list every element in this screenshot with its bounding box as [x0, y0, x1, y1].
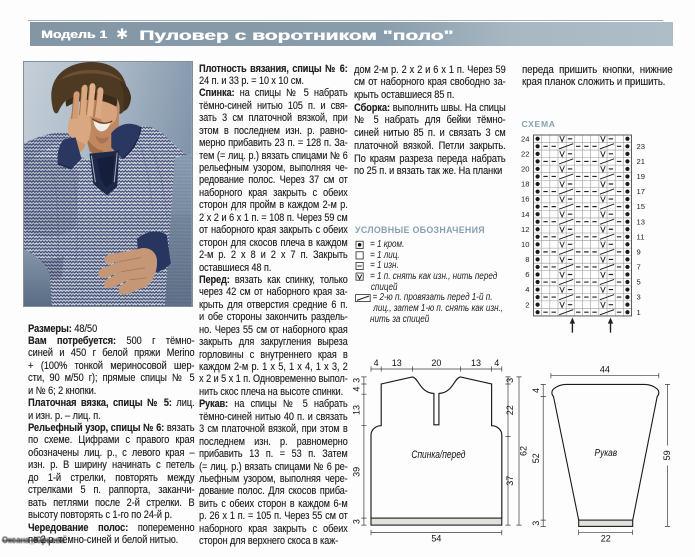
svg-text:13: 13 [352, 405, 362, 415]
svg-text:24: 24 [521, 134, 529, 143]
svg-text:59: 59 [662, 450, 672, 460]
svg-text:54: 54 [431, 534, 441, 544]
svg-text:52: 52 [531, 453, 541, 463]
svg-text:3: 3 [637, 293, 641, 302]
svg-text:4: 4 [531, 388, 541, 393]
svg-text:5: 5 [637, 278, 641, 287]
svg-text:17: 17 [637, 187, 645, 196]
svg-text:37: 37 [505, 476, 515, 486]
svg-text:21: 21 [637, 157, 645, 166]
svg-text:13: 13 [471, 358, 481, 368]
svg-text:3: 3 [505, 378, 515, 383]
svg-text:11: 11 [637, 232, 645, 241]
svg-text:20: 20 [521, 165, 529, 174]
svg-text:15: 15 [637, 202, 645, 211]
svg-text:4: 4 [352, 387, 362, 392]
svg-text:62: 62 [518, 446, 528, 456]
svg-text:3: 3 [531, 521, 541, 526]
svg-text:Рукав: Рукав [595, 448, 618, 459]
svg-text:9: 9 [637, 247, 641, 256]
svg-text:19: 19 [637, 172, 645, 181]
svg-text:Спинка/перед: Спинка/перед [411, 449, 465, 461]
svg-text:12: 12 [521, 225, 529, 234]
svg-text:4: 4 [494, 358, 499, 368]
svg-text:23: 23 [637, 142, 645, 151]
svg-text:20: 20 [431, 358, 441, 368]
svg-text:10: 10 [521, 240, 529, 249]
svg-text:4: 4 [525, 285, 529, 294]
svg-text:3: 3 [352, 519, 362, 524]
svg-text:22: 22 [521, 149, 529, 158]
svg-text:18: 18 [521, 180, 529, 189]
svg-text:7: 7 [637, 263, 641, 272]
svg-text:39: 39 [352, 467, 362, 477]
svg-text:2: 2 [525, 300, 529, 309]
svg-text:13: 13 [392, 358, 402, 368]
svg-text:8: 8 [525, 255, 529, 264]
svg-text:22: 22 [505, 405, 515, 415]
svg-text:6: 6 [525, 270, 529, 279]
svg-text:14: 14 [521, 210, 529, 219]
svg-text:13: 13 [637, 217, 645, 226]
svg-text:4: 4 [374, 358, 379, 368]
svg-text:3: 3 [352, 378, 362, 383]
svg-text:44: 44 [600, 365, 610, 375]
svg-text:22: 22 [601, 533, 611, 543]
svg-text:16: 16 [521, 195, 529, 204]
svg-text:1: 1 [637, 308, 641, 317]
